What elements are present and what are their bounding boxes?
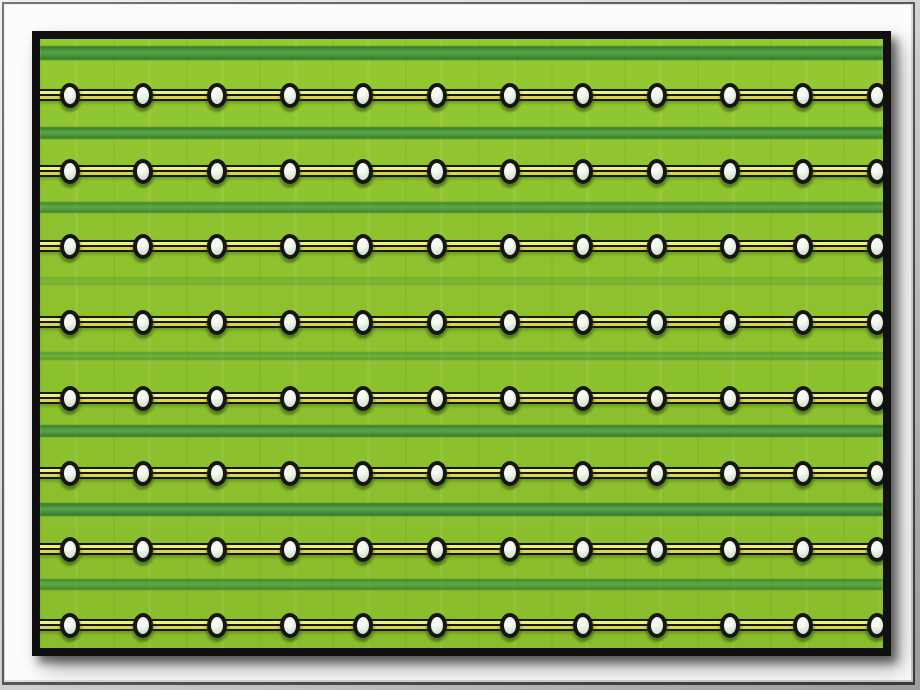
bead [59, 233, 80, 259]
bead [279, 385, 300, 411]
bead [426, 309, 447, 335]
bead [427, 612, 447, 637]
bead [793, 612, 814, 638]
bead [207, 613, 227, 638]
bead [720, 233, 740, 258]
bead [647, 536, 667, 561]
bead [133, 158, 154, 184]
bead [793, 158, 813, 183]
bead [647, 82, 668, 108]
beaded-cord [40, 619, 883, 631]
bead [499, 385, 520, 411]
bead [573, 309, 593, 334]
bead [427, 536, 448, 562]
bead [647, 233, 667, 258]
bead [867, 309, 883, 335]
bead [133, 612, 154, 638]
bead [427, 460, 448, 486]
bead [132, 309, 153, 335]
bead [59, 612, 80, 638]
bead [353, 309, 374, 335]
bead [572, 612, 593, 638]
bead [206, 158, 227, 184]
bead [866, 82, 883, 108]
bead [207, 233, 227, 258]
bead [353, 233, 374, 259]
bead [133, 82, 154, 108]
bead [59, 82, 80, 108]
bead [720, 460, 740, 485]
bead [647, 612, 668, 638]
bead [720, 83, 740, 108]
green-stripe [40, 277, 883, 285]
bead [792, 233, 813, 259]
bead [353, 158, 373, 183]
bead [60, 159, 80, 184]
bead [280, 536, 301, 562]
beaded-cord [40, 240, 883, 252]
bead [60, 536, 80, 561]
beaded-cord [40, 467, 883, 479]
bead [133, 536, 153, 561]
green-stripe [40, 425, 883, 437]
bead [427, 234, 447, 259]
bead [647, 158, 668, 184]
bead [352, 82, 373, 108]
bead [352, 612, 373, 638]
bead [280, 460, 300, 485]
bead [207, 309, 228, 335]
bead [867, 233, 883, 259]
bead [719, 536, 740, 562]
green-stripe [40, 202, 883, 213]
beaded-cord [40, 165, 883, 177]
bead [426, 158, 447, 184]
bead [279, 233, 300, 259]
bead [280, 310, 300, 335]
bead [793, 82, 814, 108]
bead [792, 385, 813, 411]
bead [793, 310, 813, 335]
bead [207, 385, 228, 411]
beaded-cord [40, 89, 883, 101]
bead [793, 460, 813, 485]
bead [573, 536, 593, 561]
bead [133, 233, 153, 258]
bead [720, 309, 741, 335]
photo [40, 39, 883, 648]
bead [573, 460, 594, 486]
beaded-cord [40, 316, 883, 328]
bead [280, 612, 301, 638]
bead [133, 386, 153, 411]
bead [207, 460, 227, 485]
bead [720, 385, 741, 411]
bead [280, 82, 301, 108]
beaded-cord [40, 543, 883, 555]
bead [793, 536, 814, 562]
bead [207, 83, 227, 108]
bead [280, 158, 300, 183]
bead [866, 612, 883, 638]
bead [573, 385, 594, 411]
green-stripe [40, 352, 883, 360]
bead [60, 460, 81, 486]
bead [647, 386, 667, 411]
bead [572, 82, 593, 108]
bead [720, 613, 740, 638]
bead [646, 309, 667, 335]
bead [353, 385, 373, 410]
picture-frame [32, 31, 891, 656]
bead [132, 460, 153, 486]
bead [427, 82, 447, 107]
bead [866, 460, 883, 486]
bead [500, 461, 520, 486]
bead [352, 460, 373, 486]
bead [646, 460, 667, 486]
bead [206, 536, 227, 562]
bead [500, 233, 521, 259]
bead [60, 309, 80, 334]
bead [573, 159, 593, 184]
bead [867, 158, 883, 183]
bead [867, 385, 883, 410]
bead [500, 158, 521, 184]
bead [353, 537, 373, 562]
green-stripe [40, 127, 883, 139]
bead [500, 309, 520, 334]
green-stripe [40, 46, 883, 60]
green-stripe [40, 579, 883, 590]
bead [427, 385, 447, 410]
bead [60, 385, 81, 411]
bead [572, 233, 593, 259]
bead [500, 82, 520, 107]
bead [500, 612, 520, 637]
bead [867, 537, 883, 562]
framed-photo-canvas [0, 0, 920, 690]
bead [499, 536, 520, 562]
bead [719, 158, 740, 184]
green-stripe [40, 503, 883, 516]
beaded-cord [40, 392, 883, 404]
